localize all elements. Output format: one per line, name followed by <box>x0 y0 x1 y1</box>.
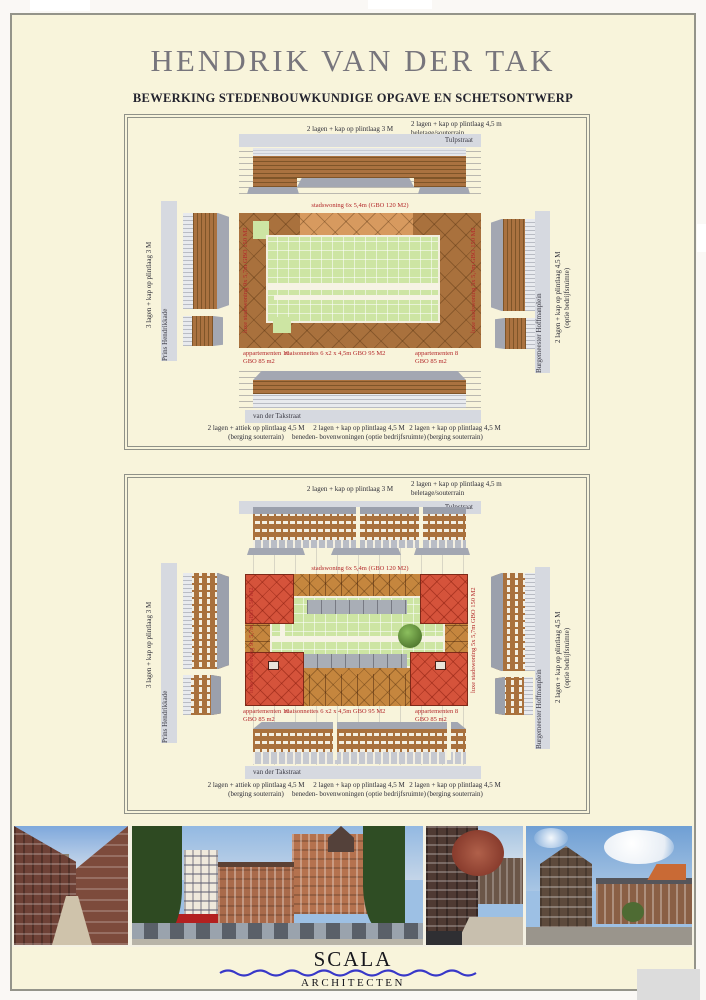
elevation-north-d1 <box>253 148 466 194</box>
inner-gray-units-bottom <box>303 654 407 668</box>
east-facade-strip-d2 <box>491 573 535 715</box>
building-block-plan-d2 <box>245 574 468 706</box>
elevation-right-block <box>414 178 466 187</box>
strip-gray-band <box>491 219 503 311</box>
facade-roof-band <box>253 722 466 729</box>
program-label-north-d1: stadswoning 6x 5,4m (GBO 120 M2) <box>239 202 481 210</box>
east-building-strip-d1 <box>491 219 535 349</box>
plinth-left <box>247 187 299 194</box>
label-line: 2 lagen + kap op plintlaag 4,5 m <box>411 120 541 129</box>
corner-block-red <box>410 652 468 706</box>
page-title: HENDRIK VAN DER TAK <box>12 43 694 79</box>
strip-light-band <box>183 316 192 346</box>
label-west-program-d1: 3 lagen + kap op plintlaag 3 M <box>145 210 154 360</box>
label-east-program-d1: 2 lagen + kap op plintlaag 4,5 M (optie … <box>554 215 572 380</box>
facade-gap <box>333 722 337 760</box>
facade-gap <box>356 507 360 548</box>
facade-windows <box>253 729 466 752</box>
logo-subtext: ARCHITECTEN <box>12 977 694 989</box>
program-label-north-d2: stadswoning 6x 5,4m (GBO 120 M2) <box>239 565 481 573</box>
strip-roof-band <box>192 316 213 346</box>
program-label-west-d1: luxe stadswoning 9x 5,7m GBO 150 M2 <box>242 215 250 345</box>
photo-white-building <box>184 850 218 920</box>
stair-core <box>268 661 279 670</box>
elevation-roof-stripes <box>253 156 466 178</box>
label-line: 2 lagen + kap op plintlaag 4,5 M <box>554 575 563 740</box>
logo-wave-underline <box>218 969 488 977</box>
strip-window-band <box>191 675 211 715</box>
elevation-plinth-stripes <box>253 394 466 408</box>
courtyard-spur-bottomleft <box>273 317 291 333</box>
scan-artifact <box>30 0 90 11</box>
strip-segment <box>183 213 229 309</box>
label-line: GBO 85 m2 <box>415 358 495 366</box>
facade-base-left <box>247 548 305 555</box>
strip-light-band <box>183 213 193 309</box>
inner-gray-units-top <box>307 600 407 614</box>
street-van-der-takstraat-d1: van der Takstraat <box>245 410 481 423</box>
street-van-der-takstraat-d2: van der Takstraat <box>245 766 481 779</box>
program-label-south-right-d1: appartementen 8 GBO 85 m2 <box>415 350 495 366</box>
photo-tree-right <box>363 826 405 931</box>
corner-block-red <box>420 574 468 624</box>
strip-light-band <box>183 573 192 669</box>
photo-mid-brick-row <box>218 862 294 925</box>
photo-street-pavement <box>132 939 423 945</box>
program-label-east-d2: luxe stadswoning 5x 5,7m GBO 150 M2 <box>470 575 478 705</box>
scala-logo: SCALA ARCHITECTEN <box>12 947 694 989</box>
facade-north-d2 <box>253 507 466 555</box>
photo-gabled-corner-building <box>526 826 692 945</box>
program-label-south-center-d1: maisonnettes 6 x2 x 4,5m GBO 95 M2 <box>265 350 405 358</box>
strip-segment <box>183 316 223 346</box>
strip-light-band <box>525 219 535 311</box>
strip-light-band <box>525 573 535 671</box>
label-line: GBO 85 m2 <box>243 358 313 366</box>
label-east-program-d2: 2 lagen + kap op plintlaag 4,5 M (optie … <box>554 575 572 740</box>
label-line: 2 lagen + kap op plintlaag 4,5 M <box>390 424 520 433</box>
label-line: 2 lagen + kap op plintlaag 4,5 M <box>554 215 563 380</box>
strip-gray-band <box>495 318 505 349</box>
strip-gray-band <box>217 213 229 309</box>
photo-small-tree <box>622 902 644 922</box>
scan-artifact <box>368 0 432 9</box>
west-facade-strip-d2 <box>183 573 229 715</box>
facade-strip-segment <box>183 675 221 715</box>
photo-row-houses <box>596 878 692 924</box>
label-line: appartementen 8 <box>415 350 495 358</box>
facade-strip-segment <box>495 677 533 715</box>
elevation-middle-plinth <box>297 178 414 187</box>
facade-gap <box>419 507 423 548</box>
photo-parked-cars <box>132 923 423 939</box>
strip-roof-band <box>217 573 229 669</box>
label-line: (berging souterrain) <box>390 790 520 799</box>
strip-segment <box>491 219 535 311</box>
facade-south-d2 <box>253 722 466 764</box>
courtyard-path <box>274 295 440 300</box>
elevation-roof-band <box>253 371 466 380</box>
label-line: (optie bedrijfsruimte) <box>563 215 572 380</box>
facade-strip-segment <box>183 573 229 669</box>
tree-icon <box>398 624 422 648</box>
street-burgemeester-hoffmanplein-d1: Burgemeester Hoffmanplein <box>535 211 550 373</box>
label-line: (optie bedrijfsruimte) <box>563 575 572 740</box>
label-northeast-program-d2: 2 lagen + kap op plintlaag 4,5 m beletag… <box>411 480 541 498</box>
strip-gray-band <box>213 316 223 346</box>
photo-strip <box>12 826 694 947</box>
photo-red-tree <box>452 830 504 876</box>
scan-artifact <box>697 224 706 252</box>
stair-core <box>435 661 446 670</box>
program-label-south-center-d2: maisonnettes 6 x2 x 4,5m GBO 95 M2 <box>265 708 405 716</box>
logo-text: SCALA <box>12 947 694 972</box>
label-north-program-d1: 2 lagen + kap op plintlaag 3 M <box>280 125 420 134</box>
strip-window-band <box>505 677 524 715</box>
strip-roof-band <box>211 675 221 715</box>
facade-gap <box>447 722 451 760</box>
photo-street-pavement <box>526 927 692 945</box>
photo-cloud <box>604 830 674 864</box>
strip-light-band <box>526 318 535 349</box>
elevation-left-block <box>253 178 297 187</box>
scan-artifact <box>637 969 700 1000</box>
bottom-label-right-d1: 2 lagen + kap op plintlaag 4,5 M (bergin… <box>390 424 520 442</box>
photo-cloud <box>534 828 568 848</box>
strip-light-band <box>183 675 191 715</box>
strip-window-band <box>192 573 217 669</box>
photo-fence <box>426 931 462 945</box>
strip-roof-band <box>491 573 503 671</box>
label-west-program-d2: 3 lagen + kap op plintlaag 3 M <box>145 570 154 720</box>
label-line: appartementen 8 <box>415 708 495 716</box>
strip-roof-band <box>505 318 526 349</box>
elevation-upper-band <box>253 148 466 156</box>
program-label-west-d2: luxe stadswoning 9x 5,7m GBO 150 M2 <box>248 575 256 705</box>
label-north-program-d2: 2 lagen + kap op plintlaag 3 M <box>280 485 420 494</box>
building-block-plan-d1 <box>239 213 481 348</box>
bottom-label-right-d2: 2 lagen + kap op plintlaag 4,5 M (bergin… <box>390 781 520 799</box>
street-prins-hendrikkade-d2: Prins Hendrikkade <box>161 563 177 743</box>
street-prins-hendrikkade-d1: Prins Hendrikkade <box>161 201 177 361</box>
page-subtitle: BEWERKING STEDENBOUWKUNDIGE OPGAVE EN SC… <box>12 91 694 106</box>
strip-roof-band <box>495 677 505 715</box>
facade-plinth <box>253 752 466 764</box>
label-line: (berging souterrain) <box>390 433 520 442</box>
facade-strip-segment <box>491 573 535 671</box>
facade-base-middle <box>331 548 401 555</box>
program-label-east-d1: luxe stadswoning 5x 5,7m GBO 150 M2 <box>470 215 478 345</box>
photo-courtyard-street <box>426 826 523 945</box>
photo-square-new-buildings <box>132 826 423 945</box>
street-burgemeester-hoffmanplein-d2: Burgemeester Hoffmanplein <box>535 567 550 749</box>
facade-base-right <box>414 548 470 555</box>
sketch-design-panel: 2 lagen + kap op plintlaag 3 M 2 lagen +… <box>124 474 590 814</box>
label-line: 2 lagen + kap op plintlaag 4,5 m <box>411 480 541 489</box>
courtyard-d1 <box>266 235 440 323</box>
label-line: 2 lagen + kap op plintlaag 4,5 M <box>390 781 520 790</box>
street-tulpstraat-d1: Tulpstraat <box>239 134 481 147</box>
courtyard-path <box>266 283 440 290</box>
photo-street-perspective <box>14 826 128 945</box>
west-building-strip-d1 <box>183 213 229 348</box>
strip-roof-band <box>503 219 525 311</box>
urban-scheme-panel: 2 lagen + kap op plintlaag 3 M 2 lagen +… <box>124 114 590 450</box>
label-line: beletage/souterrain <box>411 489 541 498</box>
plinth-right <box>418 187 470 194</box>
elevation-wall-stripes <box>253 380 466 394</box>
strip-light-band <box>524 677 533 715</box>
strip-roof-band <box>193 213 217 309</box>
strip-window-band <box>503 573 525 671</box>
strip-segment <box>495 318 535 349</box>
elevation-south-d1 <box>253 371 466 408</box>
poster-page: HENDRIK VAN DER TAK BEWERKING STEDENBOUW… <box>10 13 696 991</box>
